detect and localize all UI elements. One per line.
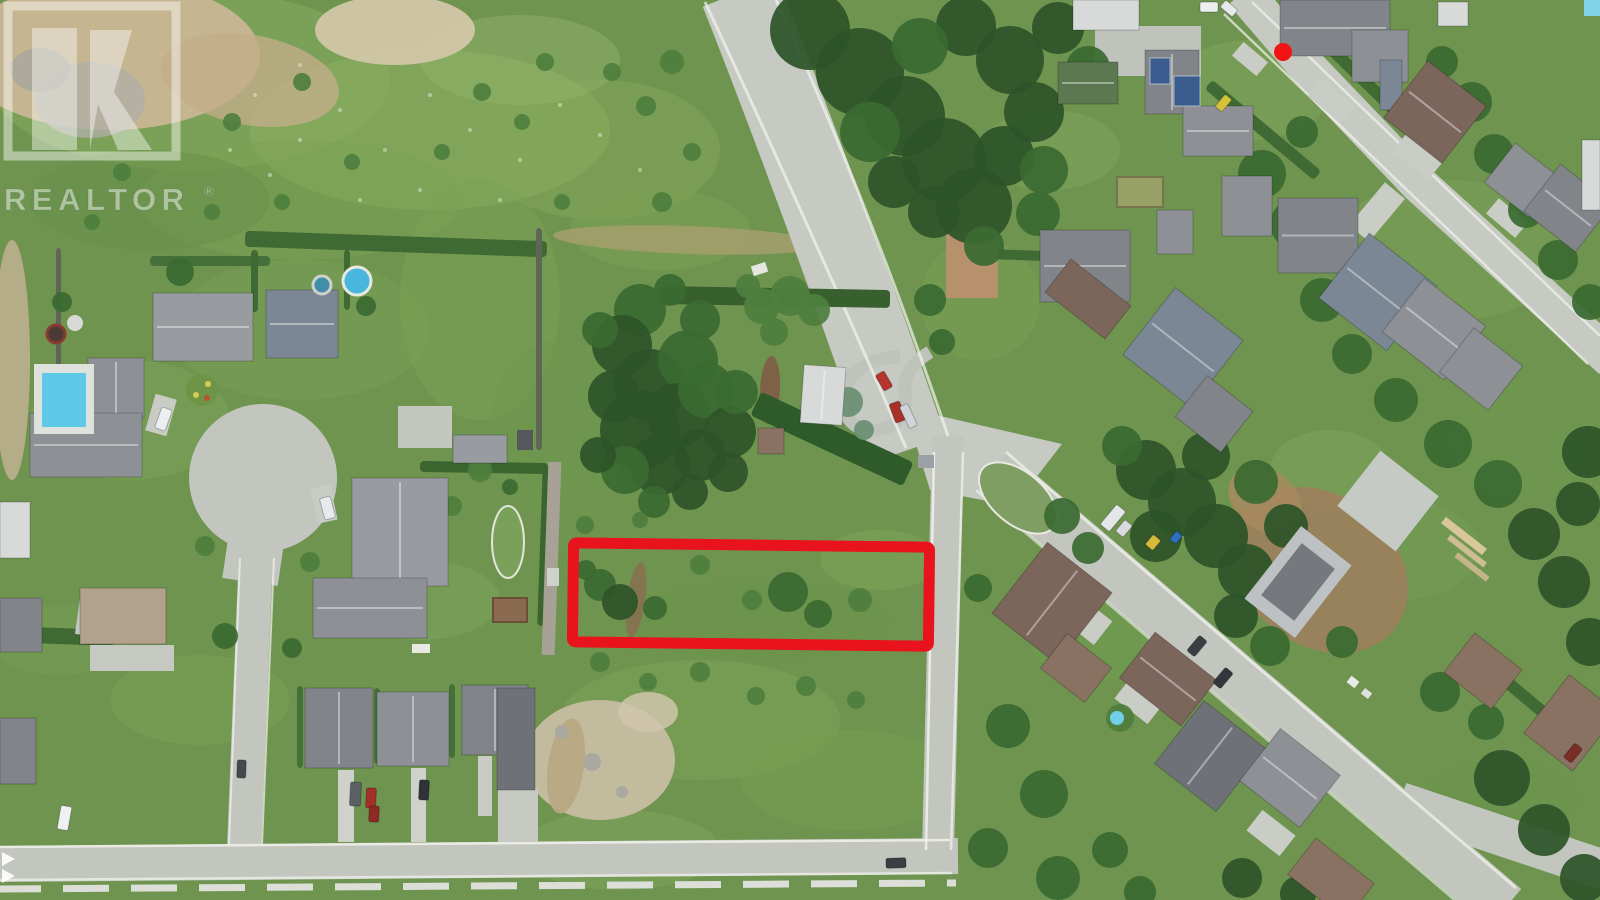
tree bbox=[576, 516, 594, 534]
wildflower-speckle bbox=[498, 198, 502, 202]
tree bbox=[639, 673, 657, 691]
tree bbox=[632, 512, 648, 528]
tree bbox=[1092, 832, 1128, 868]
tree bbox=[854, 420, 874, 440]
aerial-scene bbox=[0, 0, 1600, 900]
tree bbox=[1072, 532, 1104, 564]
tree bbox=[1474, 750, 1530, 806]
flower-bed bbox=[186, 374, 218, 406]
tree bbox=[652, 192, 672, 212]
tree bbox=[576, 560, 596, 580]
wildflower-speckle bbox=[253, 93, 257, 97]
tree bbox=[796, 676, 816, 696]
swimming-pool bbox=[42, 373, 86, 427]
tree bbox=[1016, 192, 1060, 236]
tree bbox=[654, 274, 686, 306]
tree bbox=[1518, 804, 1570, 856]
tree bbox=[1102, 426, 1142, 466]
tree bbox=[636, 96, 656, 116]
flowers bbox=[205, 381, 211, 387]
vehicle bbox=[886, 858, 906, 869]
house-roof bbox=[80, 588, 166, 644]
bottom-road bbox=[0, 856, 958, 864]
driveway bbox=[498, 788, 538, 842]
wildflower-speckle bbox=[358, 198, 362, 202]
driveway bbox=[478, 756, 492, 816]
tree bbox=[1538, 556, 1590, 608]
tree bbox=[1222, 858, 1262, 898]
aerial-photo: REALTOR ® bbox=[0, 0, 1600, 900]
vegetable-garden bbox=[1117, 177, 1163, 207]
hedge-row bbox=[536, 228, 542, 450]
kiddie-pool bbox=[1110, 711, 1124, 725]
wildflower-speckle bbox=[298, 63, 302, 67]
tree bbox=[868, 156, 920, 208]
house-roof bbox=[758, 428, 784, 454]
tree bbox=[1036, 856, 1080, 900]
tree bbox=[52, 292, 72, 312]
tree bbox=[747, 687, 765, 705]
tree bbox=[840, 102, 900, 162]
utility-pad bbox=[918, 455, 934, 468]
tree bbox=[580, 437, 616, 473]
tree bbox=[680, 300, 720, 340]
tree bbox=[344, 154, 360, 170]
garden-bed bbox=[492, 506, 524, 578]
tree bbox=[914, 284, 946, 316]
flowers bbox=[193, 392, 199, 398]
vehicle bbox=[349, 782, 361, 807]
vehicle bbox=[1200, 2, 1218, 12]
tree bbox=[434, 144, 450, 160]
solar-panel bbox=[1174, 76, 1200, 106]
trampoline bbox=[47, 325, 65, 343]
house-roof bbox=[1157, 210, 1193, 254]
tree bbox=[582, 312, 618, 348]
tree bbox=[536, 53, 554, 71]
hedge-row bbox=[449, 684, 455, 758]
tree bbox=[660, 50, 684, 74]
tree bbox=[672, 474, 708, 510]
flowers bbox=[204, 395, 210, 401]
tree bbox=[1468, 704, 1504, 740]
dirt-patch bbox=[618, 692, 678, 732]
tree bbox=[742, 590, 762, 610]
vehicle bbox=[237, 760, 247, 778]
shed-object bbox=[547, 568, 559, 586]
tree bbox=[690, 555, 710, 575]
tree bbox=[1250, 626, 1290, 666]
marker-dot bbox=[1274, 43, 1292, 61]
tree bbox=[804, 600, 832, 628]
tree bbox=[473, 83, 491, 101]
tree bbox=[1020, 770, 1068, 818]
side-street-vertical bbox=[938, 436, 948, 852]
above-ground-pool bbox=[313, 276, 331, 294]
tree bbox=[714, 370, 758, 414]
dirt-patch bbox=[10, 48, 70, 92]
tree bbox=[760, 318, 788, 346]
tree bbox=[293, 73, 311, 91]
wildflower-speckle bbox=[228, 148, 232, 152]
pool-corner bbox=[1584, 0, 1600, 16]
tree bbox=[736, 274, 760, 298]
tree bbox=[554, 194, 570, 210]
tree bbox=[1332, 334, 1372, 374]
hedge-row bbox=[297, 686, 303, 768]
tree bbox=[514, 114, 530, 130]
vehicle bbox=[369, 806, 380, 823]
house-roof bbox=[0, 502, 30, 558]
tree bbox=[643, 596, 667, 620]
driveway bbox=[398, 406, 452, 448]
wildflower-speckle bbox=[428, 93, 432, 97]
house-roof bbox=[1582, 140, 1600, 210]
tree bbox=[1326, 626, 1358, 658]
tree bbox=[892, 18, 948, 74]
house-roof bbox=[453, 435, 507, 463]
wildflower-speckle bbox=[418, 188, 422, 192]
house-roof bbox=[1073, 0, 1139, 30]
wildflower-speckle bbox=[558, 103, 562, 107]
rubble bbox=[616, 786, 628, 798]
tree bbox=[968, 828, 1008, 868]
wildflower-speckle bbox=[468, 128, 472, 132]
left-street bbox=[244, 550, 256, 848]
vehicle bbox=[418, 780, 429, 800]
field-patch bbox=[30, 150, 270, 250]
tree bbox=[1374, 378, 1418, 422]
tree bbox=[1508, 508, 1560, 560]
tree bbox=[282, 638, 302, 658]
house-roof bbox=[497, 688, 535, 790]
tree bbox=[300, 552, 320, 572]
tree bbox=[603, 63, 621, 81]
tree bbox=[204, 204, 220, 220]
tree bbox=[964, 226, 1004, 266]
tree bbox=[274, 194, 290, 210]
tree bbox=[1424, 420, 1472, 468]
driveway bbox=[90, 645, 174, 671]
round-pool bbox=[343, 267, 371, 295]
wildflower-speckle bbox=[338, 108, 342, 112]
tree bbox=[113, 163, 131, 181]
tree bbox=[502, 479, 518, 495]
tree bbox=[768, 572, 808, 612]
wildflower-speckle bbox=[298, 138, 302, 142]
wildflower-speckle bbox=[638, 168, 642, 172]
tree bbox=[590, 652, 610, 672]
tree bbox=[847, 691, 865, 709]
tree bbox=[602, 584, 638, 620]
tree bbox=[929, 329, 955, 355]
house-roof bbox=[0, 718, 36, 784]
tree bbox=[690, 662, 710, 682]
tree bbox=[798, 294, 830, 326]
tree bbox=[986, 704, 1030, 748]
tree bbox=[704, 406, 756, 458]
solar-panel bbox=[1150, 58, 1170, 84]
vehicle bbox=[365, 788, 376, 808]
vegetable-garden bbox=[493, 598, 527, 622]
tree bbox=[848, 588, 872, 612]
tree bbox=[84, 214, 100, 230]
tree bbox=[212, 623, 238, 649]
cul-de-sac-stem bbox=[250, 500, 262, 582]
tree bbox=[195, 536, 215, 556]
tree bbox=[166, 258, 194, 286]
field-patch bbox=[820, 530, 940, 590]
storage-bin bbox=[517, 430, 533, 450]
tree bbox=[588, 370, 640, 422]
house-roof bbox=[1222, 176, 1272, 236]
tree bbox=[683, 143, 701, 161]
tree bbox=[1234, 460, 1278, 504]
wildflower-speckle bbox=[268, 173, 272, 177]
tree bbox=[964, 574, 992, 602]
tree bbox=[1474, 460, 1522, 508]
patio-table bbox=[67, 315, 83, 331]
house-roof bbox=[1438, 2, 1468, 26]
tree bbox=[223, 113, 241, 131]
wildflower-speckle bbox=[383, 148, 387, 152]
tree bbox=[1556, 482, 1600, 526]
for-sale-sign bbox=[412, 644, 430, 653]
tree bbox=[356, 296, 376, 316]
driveway bbox=[411, 768, 426, 842]
wildflower-speckle bbox=[598, 133, 602, 137]
tree bbox=[708, 452, 748, 492]
rubble bbox=[583, 753, 601, 771]
house-roof bbox=[0, 598, 42, 652]
wildflower-speckle bbox=[518, 158, 522, 162]
tree bbox=[1286, 116, 1318, 148]
tree bbox=[1020, 146, 1068, 194]
rubble bbox=[555, 725, 569, 739]
tree bbox=[1044, 498, 1080, 534]
